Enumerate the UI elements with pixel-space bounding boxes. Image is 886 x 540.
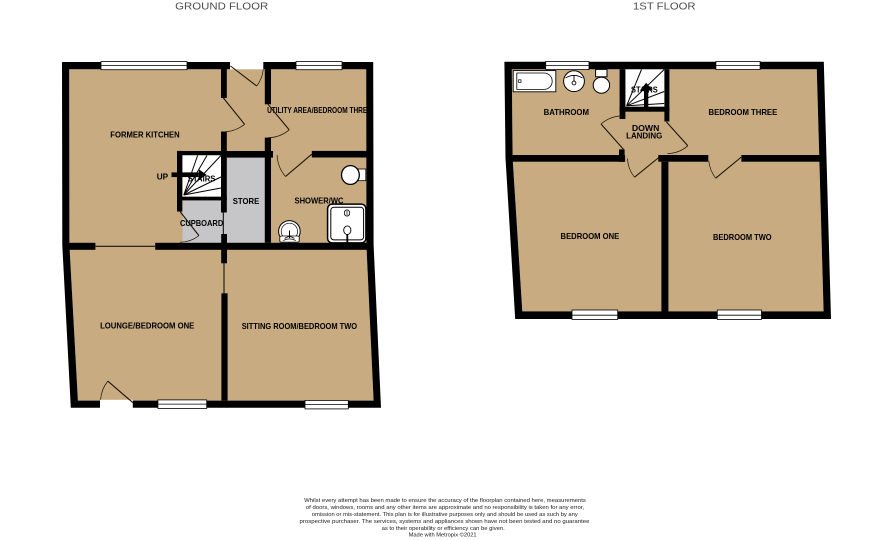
svg-text:BEDROOM ONE: BEDROOM ONE (561, 232, 620, 241)
svg-text:FORMER KITCHEN: FORMER KITCHEN (110, 131, 179, 140)
svg-text:LANDING: LANDING (626, 131, 662, 140)
svg-text:BATHROOM: BATHROOM (544, 108, 590, 117)
svg-text:of doors, windows, rooms and a: of doors, windows, rooms and any other i… (306, 505, 585, 511)
svg-text:BEDROOM THREE: BEDROOM THREE (709, 108, 778, 117)
svg-text:STORE: STORE (233, 197, 260, 206)
svg-text:UTILITY AREA/BEDROOM THREE: UTILITY AREA/BEDROOM THREE (267, 106, 372, 115)
svg-text:BEDROOM TWO: BEDROOM TWO (713, 233, 772, 242)
svg-text:Made with Metropix ©2021: Made with Metropix ©2021 (409, 532, 477, 539)
svg-text:LOUNGE/BEDROOM ONE: LOUNGE/BEDROOM ONE (100, 321, 195, 330)
svg-text:UP: UP (157, 173, 169, 182)
svg-text:1ST FLOOR: 1ST FLOOR (633, 1, 696, 13)
svg-text:Whilst every attempt has been: Whilst every attempt has been made to en… (304, 498, 586, 504)
svg-text:as to their operability or eff: as to their operability or efficiency ca… (382, 526, 506, 532)
svg-text:GROUND FLOOR: GROUND FLOOR (175, 1, 268, 13)
svg-text:prospective purchaser. The ser: prospective purchaser. The services, sys… (300, 519, 590, 525)
svg-text:SITTING ROOM/BEDROOM TWO: SITTING ROOM/BEDROOM TWO (242, 322, 358, 331)
svg-text:omission or mis-statement. Thi: omission or mis-statement. This plan is … (312, 512, 578, 518)
